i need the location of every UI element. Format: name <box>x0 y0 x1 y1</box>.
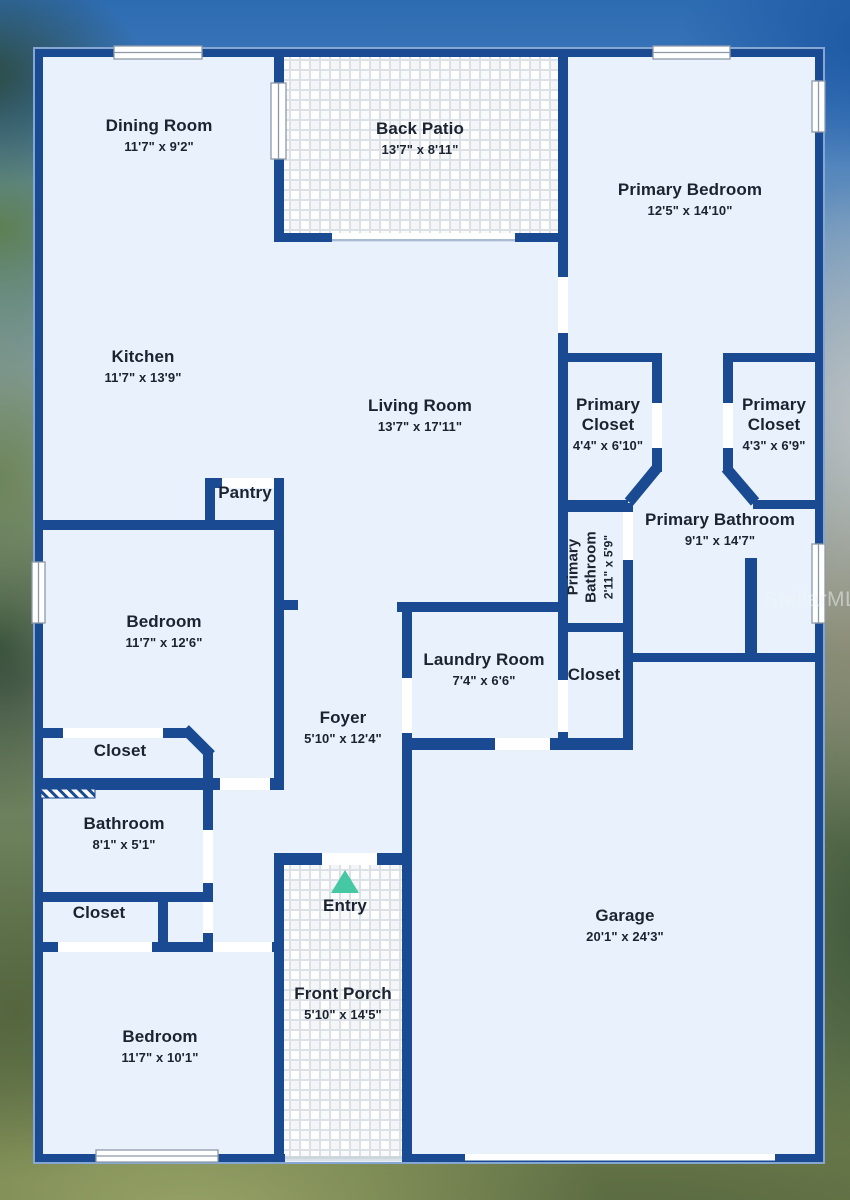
room-label-foyer: Foyer 5'10" x 12'4" <box>304 708 382 746</box>
room-label-primary-closet-right: Primary Closet 4'3" x 6'9" <box>722 395 826 453</box>
room-label-pantry: Pantry <box>218 483 272 503</box>
room-label-primary-bedroom: Primary Bedroom 12'5" x 14'10" <box>618 180 762 218</box>
room-label-bedroom-middle: Bedroom 11'7" x 12'6" <box>126 612 203 650</box>
patio-side-window <box>271 83 286 159</box>
primary-bedroom-right-window <box>812 81 825 132</box>
room-label-back-patio: Back Patio 13'7" x 8'11" <box>376 119 464 157</box>
vanity-hatch <box>41 789 95 798</box>
room-label-closet-lower: Closet <box>73 903 126 923</box>
garage-door-opening <box>465 1154 775 1162</box>
watermark: StellarMLS <box>764 588 850 612</box>
room-label-kitchen: Kitchen 11'7" x 13'9" <box>105 347 182 385</box>
room-label-living-room: Living Room 13'7" x 17'11" <box>368 396 472 434</box>
room-label-dining-room: Dining Room 11'7" x 9'2" <box>106 116 213 154</box>
room-label-laundry-room: Laundry Room 7'4" x 6'6" <box>423 650 544 688</box>
room-label-primary-bathroom-small: Primary Bathroom 2'11" x 5'9" <box>564 522 615 612</box>
room-label-primary-bathroom: Primary Bathroom 9'1" x 14'7" <box>645 510 795 548</box>
floor-plan-scene: Dining Room 11'7" x 9'2" Back Patio 13'7… <box>0 0 850 1200</box>
room-label-bedroom-lower: Bedroom 11'7" x 10'1" <box>122 1027 199 1065</box>
room-label-bathroom: Bathroom 8'1" x 5'1" <box>83 814 164 852</box>
room-label-front-porch: Front Porch 5'10" x 14'5" <box>294 984 391 1022</box>
room-label-closet-hall: Closet <box>568 665 621 685</box>
bedroom-left-window <box>32 562 45 623</box>
room-label-closet-bedroom: Closet <box>94 741 147 761</box>
dining-window <box>114 46 202 59</box>
sliding-door <box>332 233 515 242</box>
bedroom-bottom-window <box>96 1150 218 1162</box>
primary-bedroom-top-window <box>653 46 730 59</box>
room-label-primary-closet-left: Primary Closet 4'4" x 6'10" <box>556 395 660 453</box>
room-label-entry: Entry <box>323 896 367 916</box>
room-label-garage: Garage 20'1" x 24'3" <box>586 906 664 944</box>
